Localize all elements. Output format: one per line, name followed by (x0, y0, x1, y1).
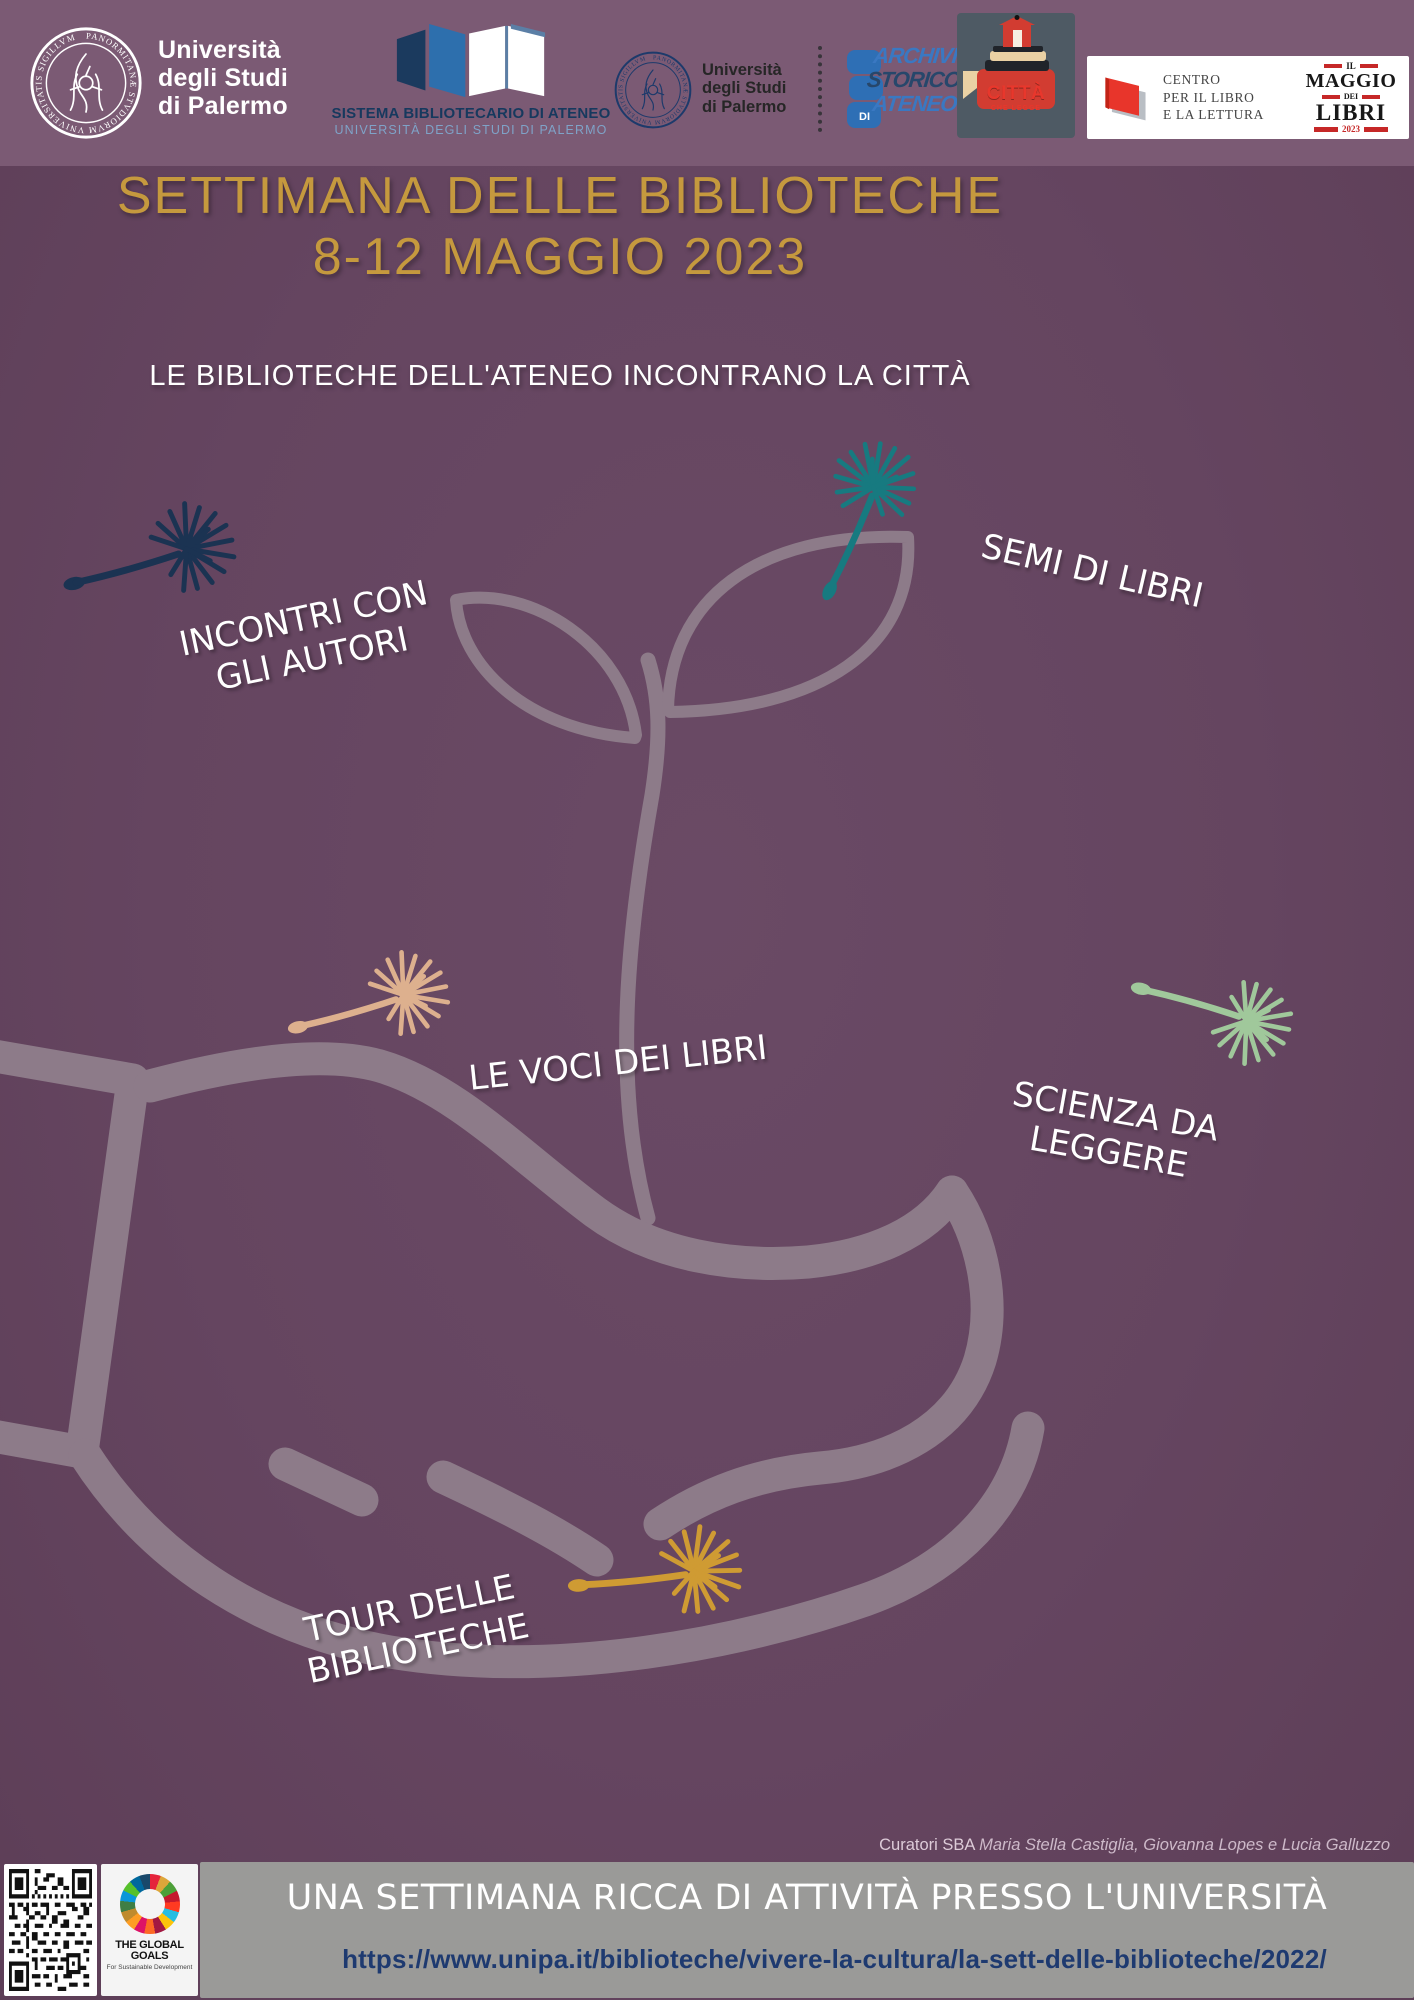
title-line-1: SETTIMANA DELLE BIBLIOTECHE (0, 166, 1120, 227)
global-goals-title: THE GLOBAL GOALS (101, 1940, 198, 1962)
unipa-crest-blue-icon (613, 50, 693, 130)
footer-banner: UNA SETTIMANA RICCA DI ATTIVITÀ PRESSO L… (200, 1862, 1414, 1998)
citta-title: CITTÀ (957, 83, 1075, 105)
maggio-word: MAGGIO (1303, 71, 1399, 92)
sba-logo: SISTEMA BIBLIOTECARIO DI ATENEO UNIVERSI… (325, 20, 617, 137)
centro-libro-book-icon (1097, 70, 1153, 126)
global-goals-logo: THE GLOBAL GOALS For Sustainable Develop… (101, 1864, 198, 1996)
tag-semi-di-libri: SEMI DI LIBRI (977, 526, 1207, 617)
dandelion-seed-teal-icon (743, 391, 966, 621)
tag-le-voci-dei-libri: LE VOCI DEI LIBRI (467, 1028, 769, 1101)
header-logo-bar: Università degli Studi di Palermo SISTEM… (0, 0, 1414, 166)
maggio-libri-logo: IL MAGGIO DEI LIBRI 2023 (1303, 61, 1399, 134)
hand-fingertip (660, 1192, 987, 1524)
unipa-seal-icon (28, 25, 144, 141)
global-goals-subtitle: For Sustainable Development (101, 1964, 198, 1971)
citta-che-legge-logo: CITTÀ CHE LEGGE (957, 13, 1075, 138)
dotted-divider (818, 46, 822, 132)
citta-subtitle: CHE LEGGE (957, 105, 1075, 112)
archivio-word-2: STORICO (866, 68, 972, 92)
poster-title: SETTIMANA DELLE BIBLIOTECHE 8-12 MAGGIO … (0, 166, 1120, 289)
curators-credit: Curatori SBA Maria Stella Castiglia, Gio… (879, 1836, 1390, 1855)
sba-subname: UNIVERSITÀ DEGLI STUDI DI PALERMO (325, 123, 617, 137)
archivio-storico-logo: DI ARCHIVIO STORICO ATENEO (845, 38, 955, 138)
maggio-libri: LIBRI (1303, 101, 1399, 124)
unipa-secondary-wordmark: Università degli Studi di Palermo (702, 61, 786, 116)
partner-logos-panel: CENTRO PER IL LIBRO E LA LETTURA IL MAGG… (1087, 56, 1409, 139)
dandelion-seed-beige-icon (285, 928, 470, 1058)
dandelion-seed-gold-icon (560, 1480, 776, 1649)
sba-open-book-icon (395, 20, 547, 102)
global-goals-ring-icon (120, 1874, 180, 1934)
poster-root: PANORMITANÆ STVDIORVM VNIVERSITATIS SIGI… (0, 0, 1414, 2000)
centro-libro-name: CENTRO PER IL LIBRO E LA LETTURA (1163, 71, 1264, 124)
sprout-stem (627, 660, 658, 1218)
title-line-2: 8-12 MAGGIO 2023 (0, 227, 1120, 288)
tag-tour-delle-biblioteche: TOUR DELLE BIBLIOTECHE (295, 1566, 533, 1694)
footer-url-link[interactable]: https://www.unipa.it/biblioteche/vivere-… (200, 1944, 1414, 1975)
hand-bottom-contour (85, 1428, 1028, 1662)
unipa-wordmark: Università degli Studi di Palermo (158, 36, 288, 120)
maggio-year: 2023 (1342, 124, 1360, 134)
dandelion-seed-mint-icon (1128, 958, 1313, 1088)
hand-cuff (0, 1050, 133, 1452)
hand-finger-fold-1 (285, 1464, 362, 1500)
sprout-leaf-left (456, 598, 636, 738)
sba-name: SISTEMA BIBLIOTECARIO DI ATENEO (325, 105, 617, 122)
archivio-word-3: ATENEO (871, 92, 969, 116)
curators-prefix: Curatori SBA (879, 1836, 974, 1854)
poster-subtitle: LE BIBLIOTECHE DELL'ATENEO INCONTRANO LA… (0, 360, 1120, 393)
dandelion-seed-navy-icon (60, 478, 258, 616)
qr-code (4, 1864, 97, 1996)
footer-headline: UNA SETTIMANA RICCA DI ATTIVITÀ PRESSO L… (200, 1878, 1414, 1918)
curators-names: Maria Stella Castiglia, Giovanna Lopes e… (979, 1836, 1390, 1854)
qr-code-icon (9, 1869, 92, 1991)
tag-scienza-da-leggere: SCIENZA DA LEGGERE (1002, 1074, 1222, 1192)
footer-bar: THE GLOBAL GOALS For Sustainable Develop… (0, 1862, 1414, 2000)
